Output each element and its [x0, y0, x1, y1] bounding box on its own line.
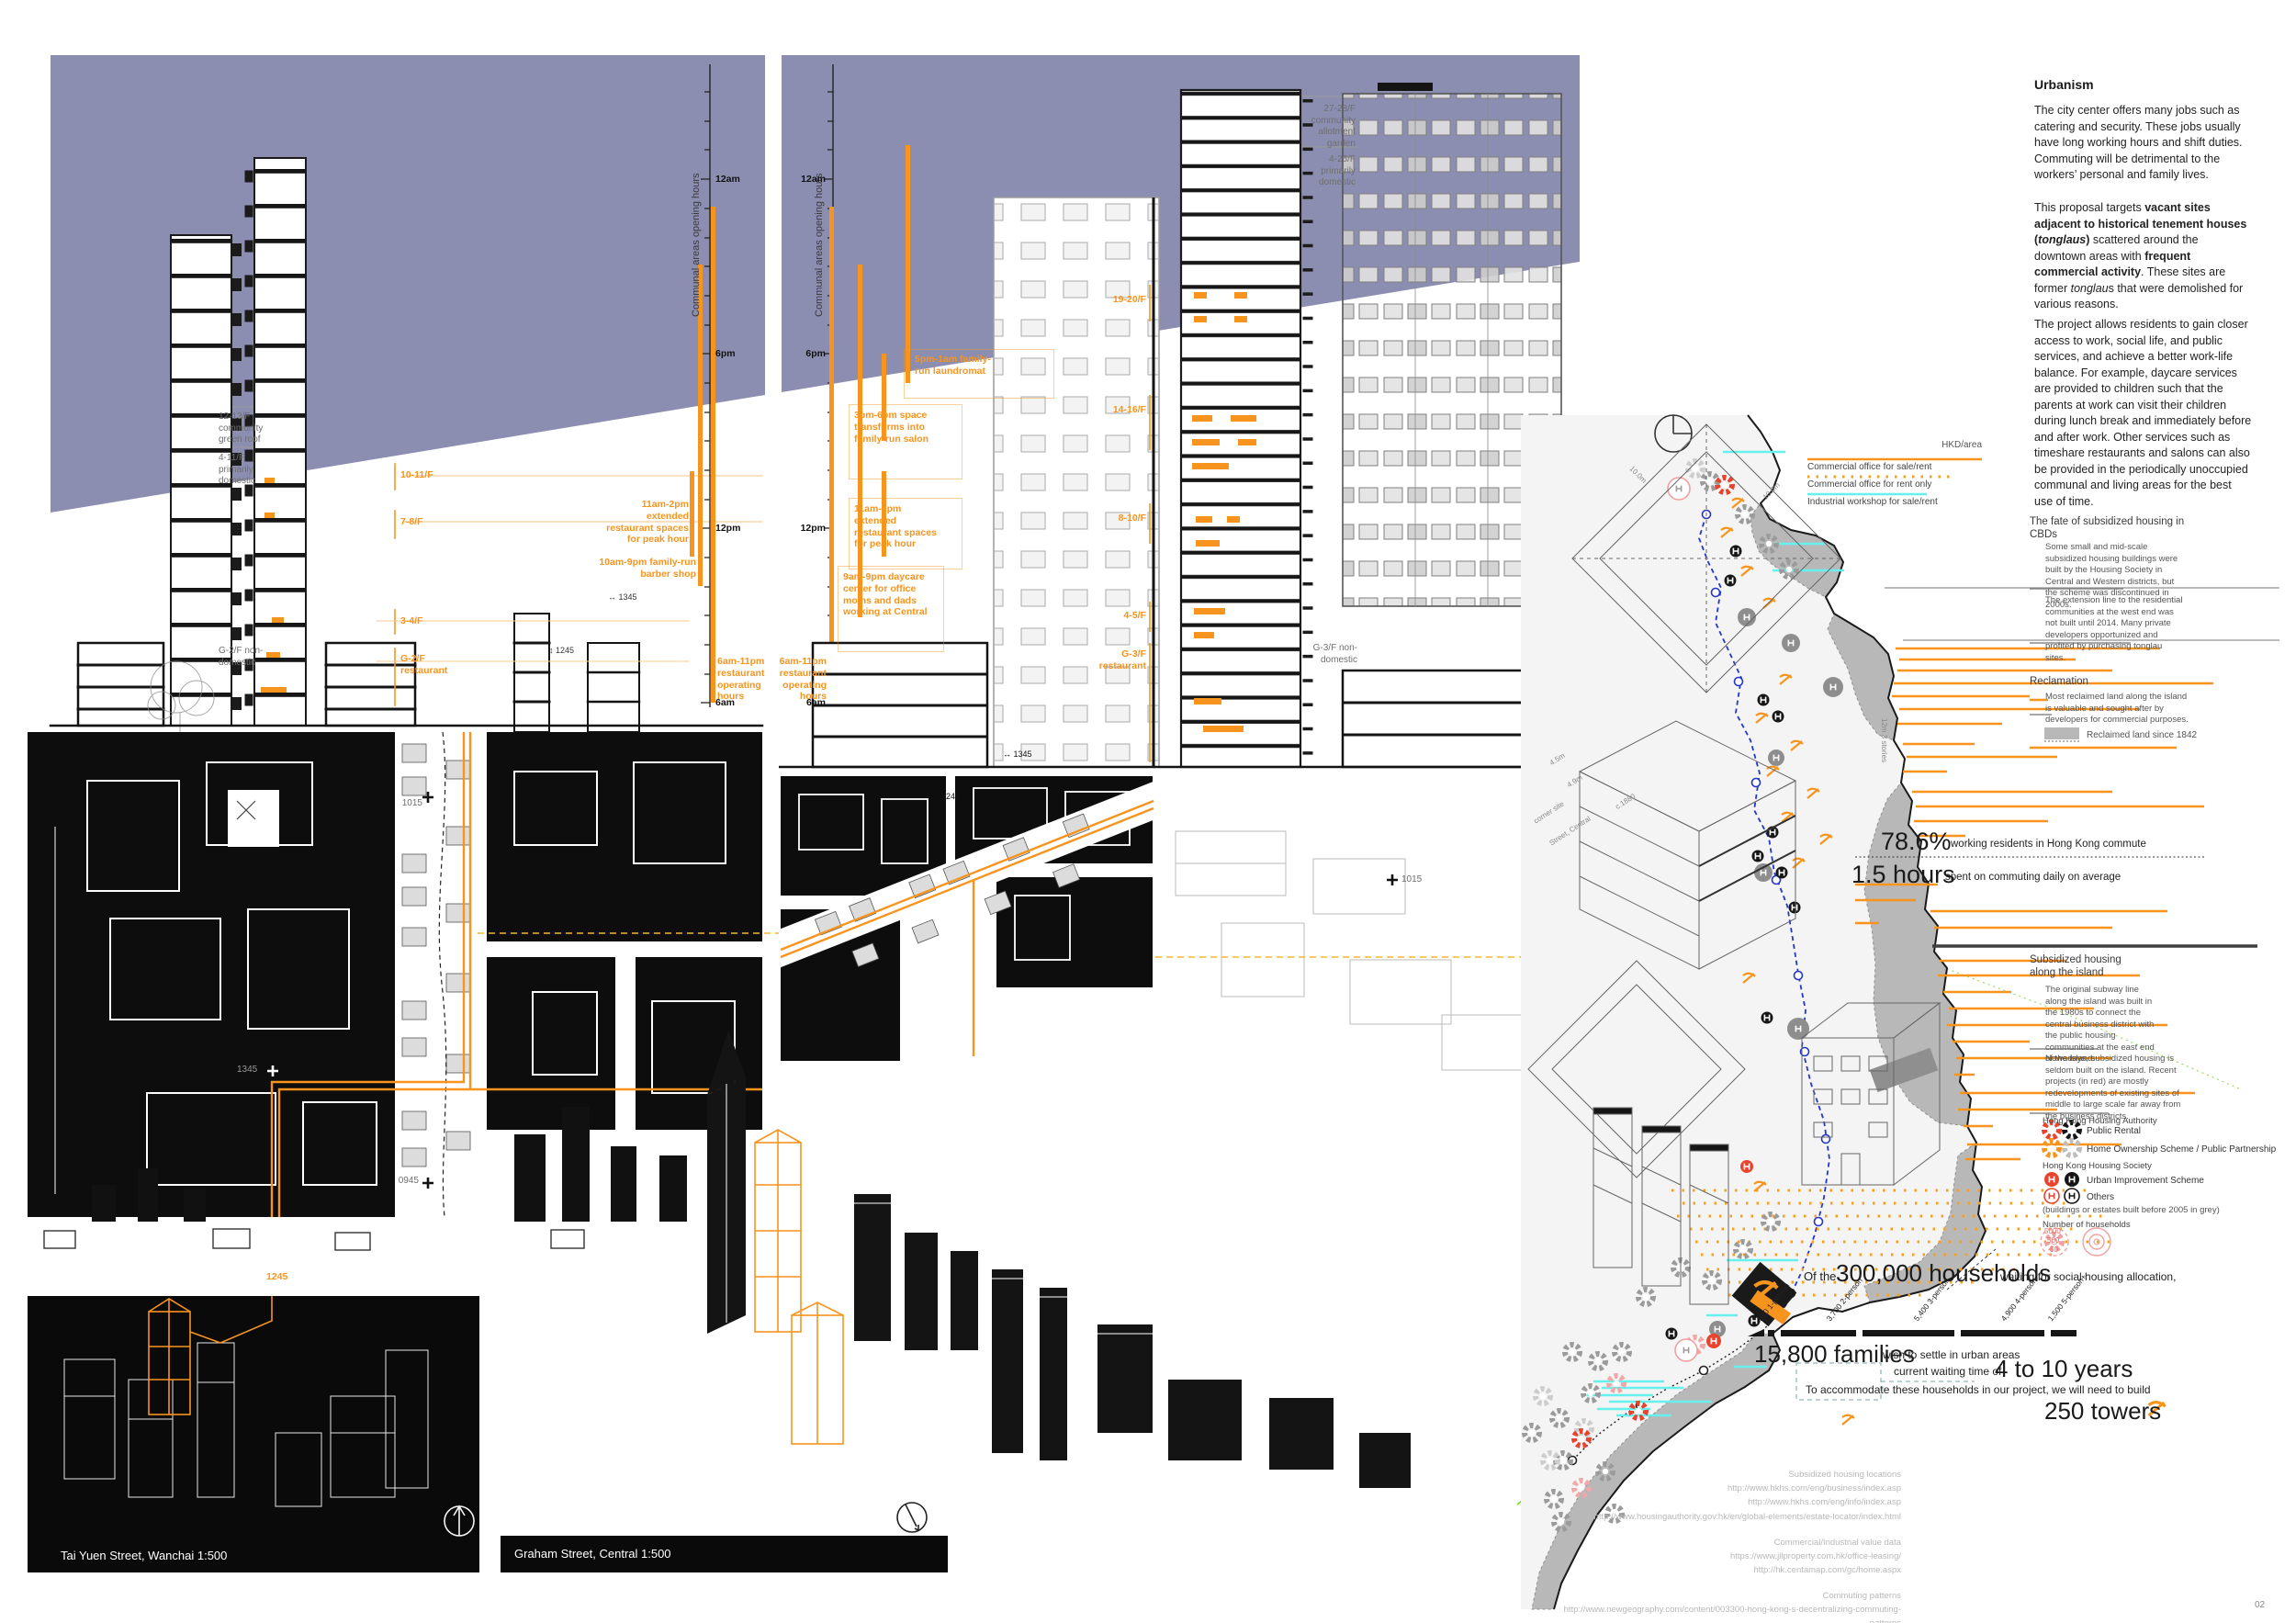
- proposal-tower-axon: [755, 1130, 843, 1444]
- stat-commute-pct: 78.6%: [1881, 827, 1952, 858]
- time-marker: 1345: [237, 1065, 257, 1076]
- stat-commute-hours: 1.5 hours: [1851, 860, 1955, 891]
- floor-label: 4-11/F primarily domestic: [219, 453, 274, 488]
- timeline-tick: 6pm: [789, 348, 826, 360]
- source-block: Subsidized housing locations http://www.…: [1534, 1468, 1901, 1524]
- floor-label-orange: 8-10/F: [1100, 513, 1146, 524]
- timeline-annotation: 6am-11pm restaurant operating hours: [777, 656, 827, 703]
- legend-item: Commercial office for sale/rent: [1807, 462, 1931, 474]
- text-run: tonglau: [2071, 282, 2109, 295]
- timeline-title: Communal areas opening hours: [814, 173, 827, 317]
- central-plan: [779, 776, 1398, 1061]
- time-marker: 0945: [380, 1176, 419, 1188]
- legend-item: Others: [2087, 1191, 2114, 1203]
- axon-towers: [854, 1194, 1411, 1488]
- legend-group-heading: Hong Kong Housing Society: [2043, 1161, 2152, 1173]
- section-heading: Reclamation: [2030, 675, 2088, 688]
- floor-label: 4-26/F primarily domestic: [1297, 154, 1356, 189]
- text-run: ): [2086, 233, 2093, 246]
- timeline-tick: 12pm: [715, 523, 740, 535]
- timeline-annotation: 10am-9pm family-run barber shop: [595, 557, 696, 580]
- floor-label: G-2/F non- domestic: [219, 646, 272, 669]
- sub-paragraph: Nowadays, subsidized housing is seldom b…: [2045, 1054, 2183, 1122]
- sub-paragraph: The extension line to the residential co…: [2045, 595, 2183, 664]
- floor-label-orange: 3-4/F: [400, 615, 423, 627]
- towers-needed: 250 towers: [2044, 1396, 2161, 1426]
- floor-label: G-3/F non- domestic: [1302, 643, 1357, 666]
- compass-icon: [897, 1503, 927, 1532]
- legend-h-icons: [2044, 1172, 2079, 1203]
- timeline-tick: 12am: [715, 174, 740, 186]
- floor-label: 27-28/F community allotment garden: [1293, 104, 1356, 150]
- stat-label: working residents in Hong Kong commute: [1951, 838, 2146, 851]
- scale-label: 5000: [2044, 1227, 2061, 1236]
- floor-label-orange: 7-8/F: [400, 516, 423, 528]
- wanchai-plan: [28, 732, 762, 1296]
- timeline-tick: 6pm: [715, 348, 736, 360]
- stat-label: spent on commuting daily on average: [1945, 871, 2121, 884]
- floor-label: 12-13/F community green roof: [219, 411, 276, 446]
- board-graphics: [0, 0, 2296, 1623]
- paragraph: The city center offers many jobs such as…: [2034, 103, 2247, 184]
- build-line: To accommodate these households in our p…: [1806, 1383, 2151, 1397]
- floor-label-orange: G-3/F restaurant: [1082, 648, 1146, 672]
- column-heading: Urbanism: [2034, 77, 2094, 94]
- presentation-board: 12-13/F community green roof 4-11/F prim…: [0, 0, 2296, 1623]
- time-marker: ↕ 1245: [935, 792, 960, 802]
- wanchai-axon: [28, 1296, 479, 1572]
- floor-label-orange: 4-5/F: [1100, 610, 1146, 622]
- legend-item: Industrial workshop for sale/rent: [1807, 497, 1938, 509]
- timeline-annotation: 11am-2pm extended restaurant spaces for …: [854, 503, 939, 550]
- timeline-annotation: 6am-11pm restaurant operating hours: [717, 656, 765, 703]
- reclaimed-swatch: [2044, 727, 2079, 739]
- sub-paragraph: Most reclaimed land along the island is …: [2045, 692, 2190, 727]
- households-bar: [1748, 1329, 2077, 1336]
- wanchai-panel-title: Tai Yuen Street, Wanchai 1:500: [61, 1549, 227, 1563]
- section-dim: ↕ 1245: [549, 646, 574, 656]
- section-heading: The fate of subsidized housing in CBDs: [2030, 515, 2195, 542]
- legend-item: Urban Improvement Scheme: [2087, 1175, 2204, 1187]
- section-dim: ↔ 1345: [608, 592, 637, 603]
- legend-item: Home Ownership Scheme / Public Partnersh…: [2087, 1144, 2276, 1155]
- timeline-tick: 12am: [789, 174, 826, 186]
- reclaimed-legend-label: Reclaimed land since 1842: [2087, 729, 2197, 741]
- floor-label-orange: G-2/F restaurant: [400, 653, 457, 677]
- wait-pre: current waiting time of: [1894, 1365, 2001, 1379]
- legend-item: Commercial office for rent only: [1807, 479, 1931, 491]
- legend-item: Public Rental: [2087, 1125, 2141, 1137]
- dim-label: 12m 3 stories: [1879, 718, 1888, 762]
- timeline-annotation: 3pm-6pm space transforms into family-run…: [854, 410, 937, 445]
- legend-note: (buildings or estates built before 2005 …: [2043, 1205, 2245, 1217]
- paragraph: This proposal targets vacant sites adjac…: [2034, 200, 2253, 313]
- page-number: 02: [2255, 1600, 2265, 1612]
- section-heading: Subsidized housing along the island: [2030, 953, 2140, 980]
- time-marker: ↔ 1345: [1003, 750, 1032, 760]
- time-marker: 1015: [1401, 874, 1422, 886]
- floor-label-orange: 10-11/F: [400, 469, 433, 481]
- text-run: This proposal targets: [2034, 201, 2144, 214]
- central-panel-title: Graham Street, Central 1:500: [514, 1547, 671, 1561]
- timeline-annotation: 5pm-1am family-run laundromat: [915, 354, 1002, 378]
- timeline-title: Communal areas opening hours: [691, 173, 703, 317]
- time-marker: 1015: [384, 798, 422, 810]
- households-intro-pre: Of the: [1804, 1269, 1836, 1284]
- floor-label-orange: 14-16/F: [1100, 404, 1146, 416]
- timeline-tick: 12pm: [789, 523, 826, 535]
- timeline-annotation: 11am-2pm extended restaurant spaces for …: [599, 499, 689, 546]
- wait-years: 4 to 10 years: [1995, 1354, 2133, 1384]
- scale-label: 50: [2050, 1245, 2058, 1255]
- time-marker: 1245: [266, 1271, 287, 1283]
- timeline-annotation: 9am-9pm daycare center for office moms a…: [843, 571, 935, 618]
- floor-label-orange: 19-20/F: [1100, 294, 1146, 306]
- paragraph: The project allows residents to gain clo…: [2034, 317, 2253, 510]
- source-block: Commuting patterns http://www.newgeograp…: [1534, 1589, 1901, 1623]
- text-run: tonglaus: [2038, 233, 2086, 246]
- legend-unit: HKD/area: [1910, 440, 1982, 452]
- source-block: Commercial/Industrial value data https:/…: [1534, 1536, 1901, 1578]
- scale-label: 500: [2047, 1236, 2059, 1245]
